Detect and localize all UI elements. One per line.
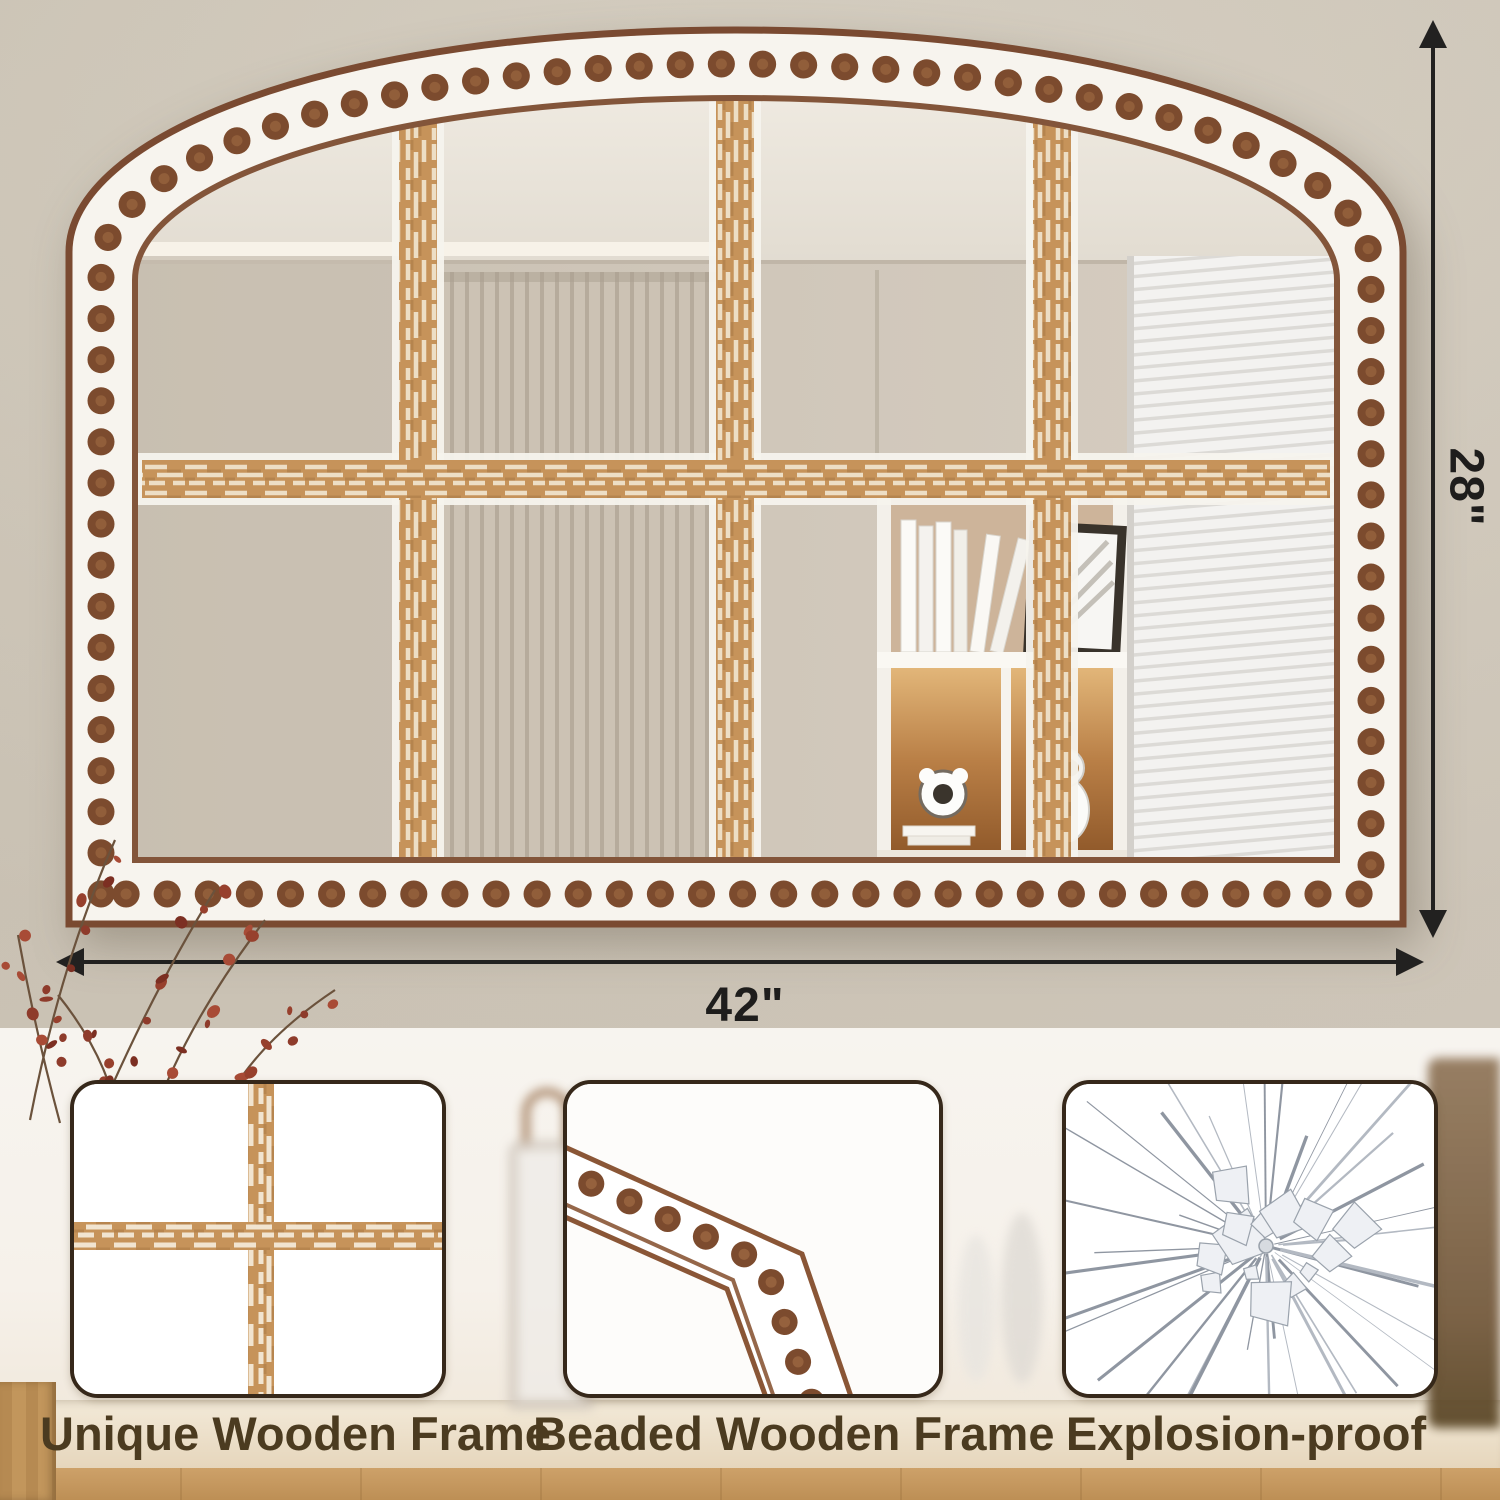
flower-petal: [112, 854, 122, 864]
flower-petal: [165, 1066, 180, 1081]
mirror-reflection: [125, 90, 1347, 870]
flower-petal: [101, 874, 117, 890]
shattered-glass-graphic: [1066, 1084, 1434, 1394]
slat-panel: [437, 272, 721, 864]
dried-flowers: [0, 795, 380, 1125]
flower-petal: [221, 952, 237, 967]
flower-petal: [41, 984, 52, 996]
flower-petal: [204, 1019, 211, 1029]
height-label: 28": [1439, 448, 1494, 524]
flower-petal: [130, 1056, 139, 1067]
product-infographic: 28" 42": [0, 0, 1500, 1500]
arrow-up-icon: [1419, 20, 1447, 48]
flower-stem: [18, 935, 60, 1123]
sideboard-front: [0, 1468, 1500, 1500]
flower-petal: [75, 892, 88, 908]
left-wall-shade: [125, 256, 425, 866]
arched-window-mirror: [65, 20, 1407, 930]
bookshelf-shelf: [877, 652, 1127, 668]
flower-petal: [58, 1032, 68, 1043]
flower-petal: [0, 961, 11, 972]
flower-petal: [102, 1056, 116, 1070]
flower-petal: [286, 1034, 300, 1047]
feature-card-beaded-frame: [563, 1080, 943, 1398]
feature-label-beaded-frame: Beaded Wooden Frame: [533, 1406, 965, 1466]
mirror-graphic: [65, 20, 1407, 928]
bottles-ghost: [948, 1128, 1052, 1403]
arrow-right-icon: [1396, 948, 1424, 976]
feature-label-wooden-frame: Unique Wooden Frame: [40, 1406, 468, 1466]
flower-petal: [18, 929, 31, 942]
feature-card-explosion-proof: [1062, 1080, 1438, 1398]
impact-center: [1259, 1239, 1273, 1253]
wall-corner-line: [875, 270, 879, 480]
slat-panel-top-shadow: [437, 272, 721, 282]
window-blinds: [1127, 256, 1339, 864]
wicker-basket-ghost: [1428, 1058, 1500, 1428]
flower-petal: [326, 997, 340, 1010]
flower-petal: [287, 1006, 293, 1016]
height-dimension-line: [1431, 32, 1435, 922]
cubby-divider: [1001, 668, 1011, 854]
blinds-edge: [1127, 256, 1134, 864]
wood-cross-graphic: [74, 1084, 442, 1394]
book-stack-decor: [903, 826, 975, 845]
grid-bar-horizontal: [142, 460, 1330, 498]
feature-card-wooden-frame: [70, 1080, 446, 1398]
flower-petal: [259, 1037, 274, 1052]
cross-horizontal-bar: [74, 1222, 442, 1250]
alarm-clock-decor: [919, 768, 968, 817]
flower-petal: [39, 996, 53, 1002]
flower-petal: [217, 883, 234, 901]
flower-petal: [172, 913, 190, 931]
flower-petal: [56, 1056, 67, 1067]
feature-label-explosion-proof: Explosion-proof: [1032, 1406, 1460, 1466]
beaded-corner-graphic: [567, 1084, 939, 1394]
arrow-down-icon: [1419, 910, 1447, 938]
width-label: 42": [600, 978, 890, 1033]
flower-petal: [25, 1005, 41, 1022]
